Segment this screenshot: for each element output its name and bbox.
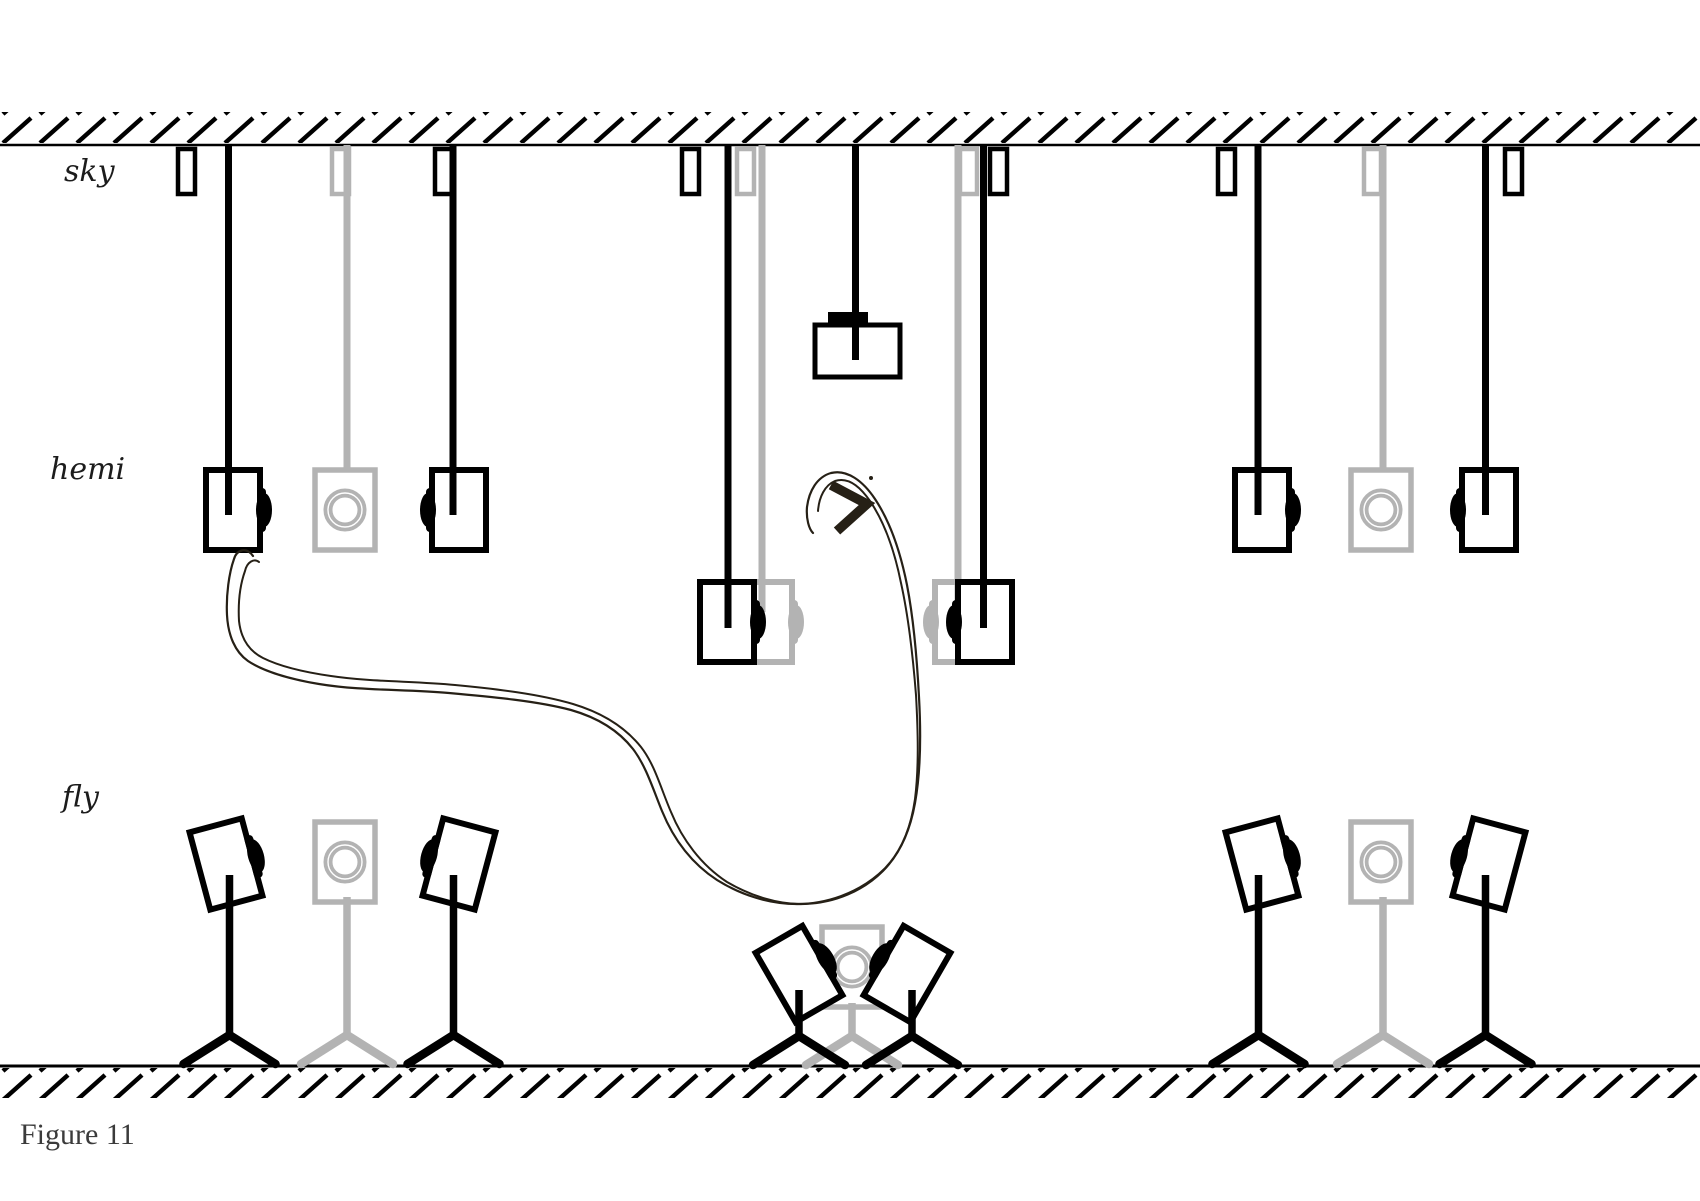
hemi-left-group: [206, 145, 486, 550]
ceiling-mount: [435, 149, 452, 194]
ceiling-hatch: [0, 112, 1700, 143]
hemi-label: hemi: [50, 452, 125, 487]
figure-page: sky hemi fly Figure 11: [0, 0, 1700, 1201]
fly-center-group: [753, 920, 958, 1065]
ceiling-mount: [960, 149, 977, 194]
hanging-speaker-gray: [1351, 470, 1411, 550]
ceiling-mount: [1505, 149, 1522, 194]
tripod-legs: [184, 1035, 276, 1064]
sky-label: sky: [64, 154, 116, 189]
hemi-right-group: [1235, 145, 1516, 550]
tripod-legs: [1440, 1035, 1532, 1064]
floor-speaker-gray: [1351, 822, 1411, 902]
floor-hatch: [0, 1068, 1700, 1098]
ceiling-mount: [1218, 149, 1235, 194]
stage-elevation-diagram: sky hemi fly Figure 11: [0, 0, 1700, 1201]
figure-caption: Figure 11: [20, 1118, 135, 1151]
ceiling-mount: [990, 149, 1007, 194]
fly-left-group: [184, 815, 500, 1064]
ceiling-mounts: [178, 149, 1522, 194]
sketch-dot: [869, 476, 873, 480]
ceiling-mount: [178, 149, 195, 194]
ceiling-mount: [682, 149, 699, 194]
tripod-legs: [1337, 1035, 1429, 1064]
floor: [0, 1066, 1700, 1098]
hanging-speaker-black: [206, 470, 272, 550]
ceiling-mount: [737, 149, 754, 194]
hanging-speaker-gray: [315, 470, 375, 550]
hemi-center-left-pair: [700, 145, 804, 662]
floor-speaker-black: [1226, 815, 1310, 909]
fly-right-group: [1213, 815, 1532, 1064]
floor-speaker-gray: [315, 822, 375, 902]
hanging-fixture: [815, 145, 900, 377]
tripod-legs: [301, 1035, 393, 1064]
hanging-speaker-black: [1235, 470, 1301, 550]
ceiling-mount: [1364, 149, 1381, 194]
tripod-legs: [408, 1035, 500, 1064]
hemi-center-right-pair: [923, 145, 1012, 662]
tripod-legs: [1213, 1035, 1305, 1064]
fixture-cap: [828, 312, 868, 327]
hanging-speaker-black: [946, 582, 1012, 662]
fly-label: fly: [60, 780, 100, 815]
hanging-speaker-black: [700, 582, 766, 662]
ceiling: [0, 112, 1700, 145]
